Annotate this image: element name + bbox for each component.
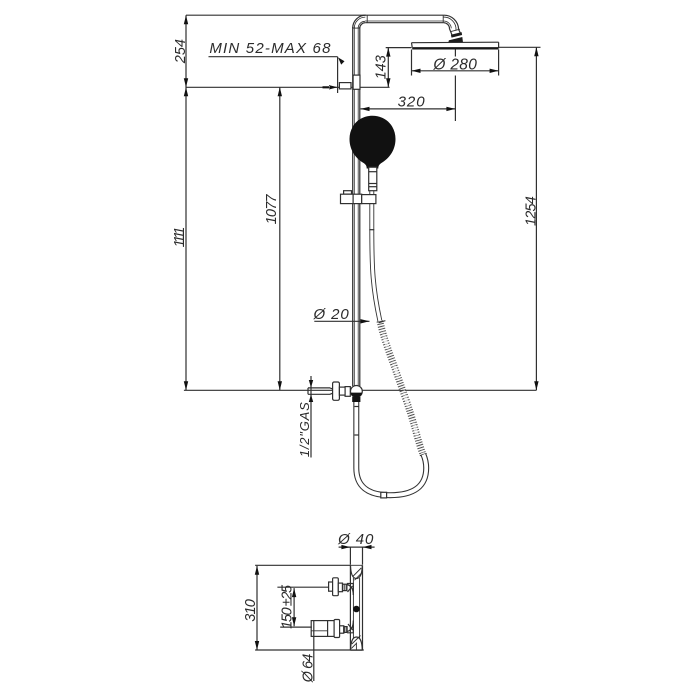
svg-text:1111: 1111	[172, 228, 188, 248]
svg-text:143: 143	[373, 55, 389, 79]
svg-text:1/2"GAS: 1/2"GAS	[297, 401, 312, 457]
svg-text:310: 310	[243, 599, 259, 622]
svg-text:254: 254	[173, 39, 189, 64]
svg-text:Ø 280: Ø 280	[432, 56, 477, 73]
svg-text:Ø 20: Ø 20	[313, 306, 350, 323]
svg-text:320: 320	[398, 93, 426, 110]
svg-text:1254: 1254	[524, 196, 540, 226]
svg-text:MIN 52-MAX 68: MIN 52-MAX 68	[209, 40, 331, 57]
svg-text:Ø 40: Ø 40	[337, 531, 374, 548]
svg-text:Ø 64: Ø 64	[301, 654, 317, 684]
svg-text:1077: 1077	[264, 194, 280, 225]
svg-text:150 ±25: 150 ±25	[279, 584, 295, 629]
